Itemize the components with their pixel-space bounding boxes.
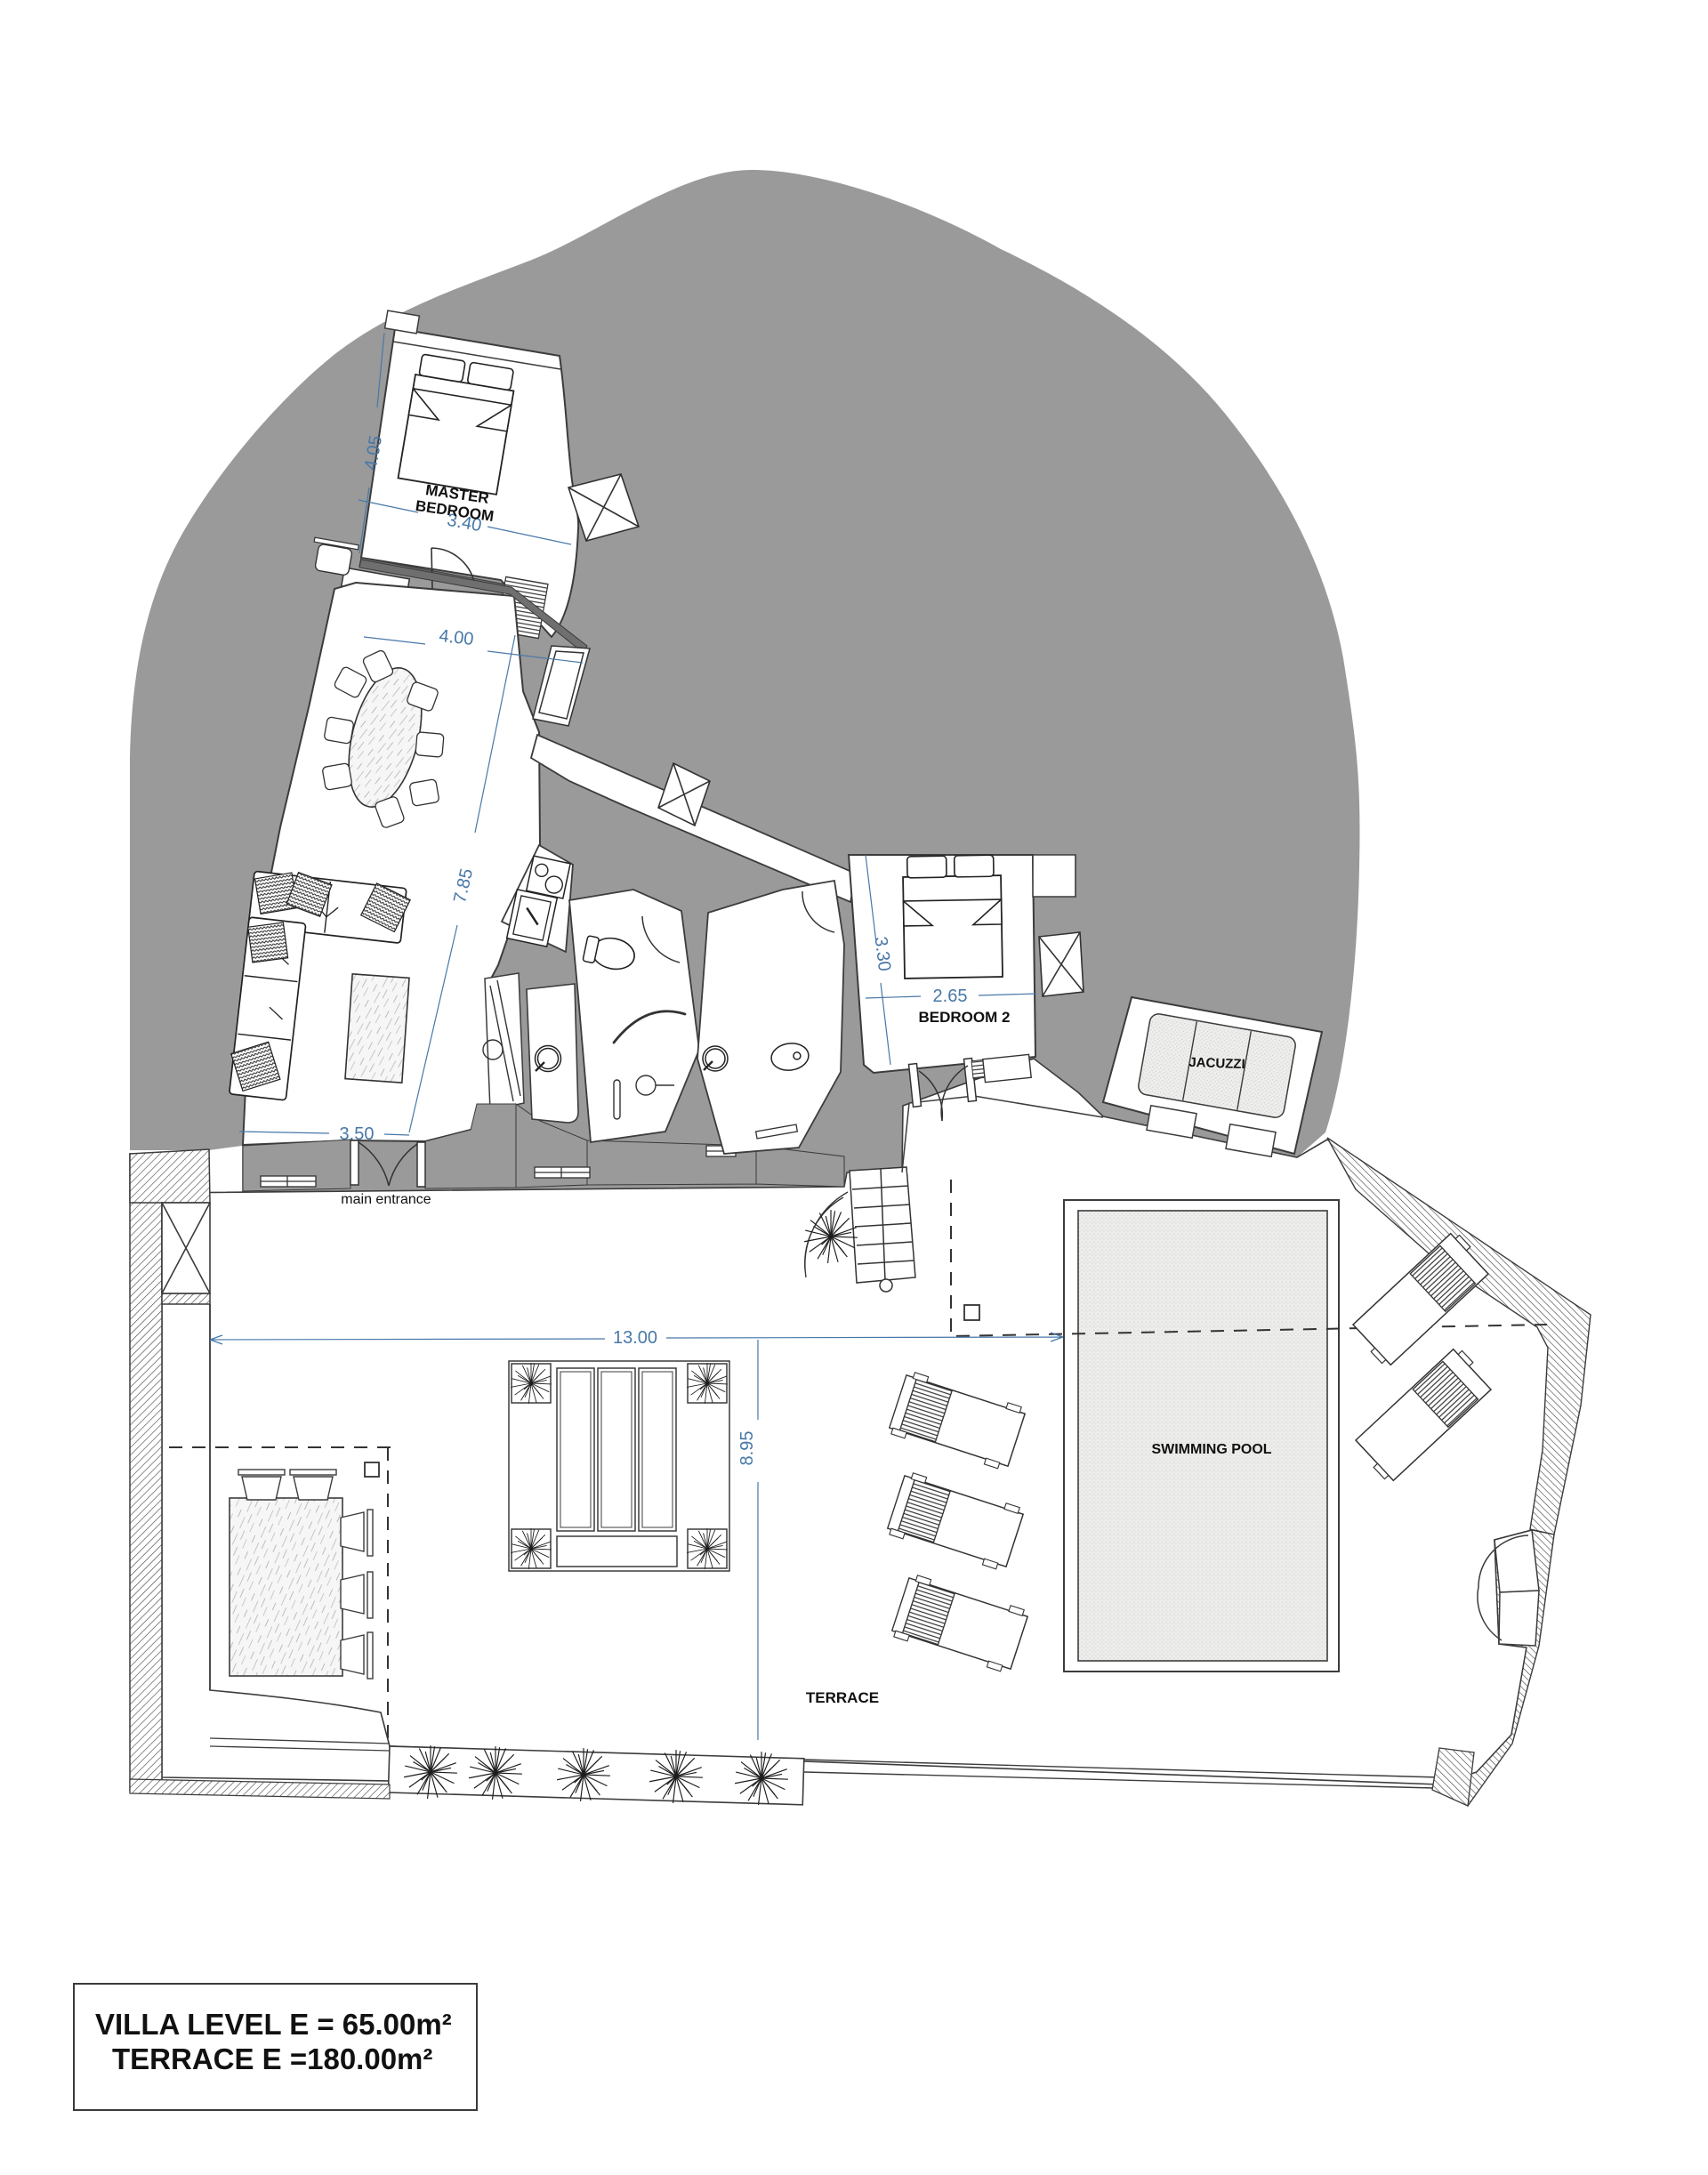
svg-text:main entrance: main entrance — [341, 1192, 431, 1207]
svg-text:VILLA LEVEL E = 65.00m²: VILLA LEVEL E = 65.00m² — [95, 2008, 452, 2041]
svg-text:13.00: 13.00 — [613, 1328, 657, 1348]
svg-text:3.50: 3.50 — [340, 1124, 375, 1144]
svg-text:TERRACE E =180.00m²: TERRACE E =180.00m² — [112, 2042, 432, 2075]
svg-text:BEDROOM 2: BEDROOM 2 — [919, 1009, 1011, 1026]
svg-text:SWIMMING POOL: SWIMMING POOL — [1151, 1442, 1271, 1457]
svg-text:8.95: 8.95 — [737, 1431, 757, 1466]
svg-text:2.65: 2.65 — [933, 987, 968, 1006]
svg-text:4.00: 4.00 — [438, 626, 474, 649]
svg-text:3.30: 3.30 — [871, 936, 895, 972]
svg-text:JACUZZI: JACUZZI — [1188, 1055, 1245, 1072]
svg-text:TERRACE: TERRACE — [806, 1689, 879, 1706]
